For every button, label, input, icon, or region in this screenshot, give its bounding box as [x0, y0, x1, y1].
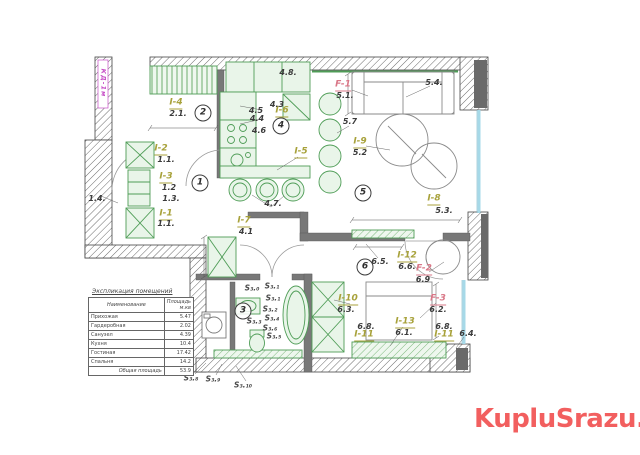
room-name: Кухня — [89, 340, 165, 349]
clothes-rack — [150, 66, 217, 94]
room-name: Гостиная — [89, 349, 165, 358]
kuplusrazu-watermark: KupluSrazu.ru — [474, 404, 634, 434]
armchair-2 — [411, 143, 457, 189]
hall-wardrobe-3 — [208, 237, 236, 277]
kitchen-bar-counter — [220, 166, 310, 178]
total-area-label: Общая площадь — [89, 367, 165, 376]
toilet — [250, 330, 265, 352]
table-row: Гостиная17.42 — [89, 349, 194, 358]
kitchen-counter — [220, 92, 256, 120]
room-name: Спальня — [89, 358, 165, 367]
room-name: Гардеробная — [89, 322, 165, 331]
bar-stools — [229, 179, 304, 201]
explication-table: Наименование Площадь м.кв Прихожая5.47Га… — [88, 297, 194, 376]
hall-shoe-cabinet — [128, 170, 150, 206]
hall-wardrobe-1 — [126, 142, 154, 168]
hall-door-arc — [240, 245, 272, 277]
bedroom-wardrobe — [312, 282, 344, 352]
washing-machine — [202, 312, 226, 338]
shaft-strip — [98, 60, 108, 108]
floor-plan-page: I-42.1.I-21.1.I-31.21.3.1.4.I-11.1.I-74.… — [0, 0, 640, 455]
bedroom-armchair — [426, 240, 460, 274]
room-explication: Экспликация помещений Наименование Площа… — [88, 288, 194, 376]
floor-plan-drawing — [0, 0, 640, 455]
bathtub — [283, 286, 309, 344]
room-name: Санузел — [89, 331, 165, 340]
tv-console — [352, 230, 414, 238]
column-header-area: Площадь м.кв — [164, 298, 193, 313]
table-row: Гардеробная2.02 — [89, 322, 194, 331]
table-row: Прихожая5.47 — [89, 313, 194, 322]
room-area: 17.42 — [164, 349, 193, 358]
dining-chairs — [319, 93, 341, 193]
bath-sink — [236, 298, 260, 314]
armchair-1 — [376, 114, 428, 166]
table-title: Экспликация помещений — [92, 288, 194, 295]
kitchen-wall-cabinets — [226, 62, 310, 92]
kitchen-stove — [220, 120, 256, 148]
sofa — [352, 72, 454, 114]
room-name: Прихожая — [89, 313, 165, 322]
room-area: 14.2 — [164, 358, 193, 367]
table-row: Спальня14.2 — [89, 358, 194, 367]
bathroom-door-arc — [272, 245, 304, 277]
table-row: Санузел4.39 — [89, 331, 194, 340]
bed — [366, 282, 432, 340]
hall-wardrobe-2 — [126, 208, 154, 238]
room-area: 10.4 — [164, 340, 193, 349]
wardrobe-room-door-arc — [186, 150, 222, 186]
bedroom-bench — [352, 342, 446, 358]
total-area-value: 53.9 — [164, 367, 193, 376]
table-row: Кухня10.4 — [89, 340, 194, 349]
room-area: 5.47 — [164, 313, 193, 322]
fridge — [283, 94, 310, 120]
room-area: 2.02 — [164, 322, 193, 331]
column-header-name: Наименование — [89, 298, 165, 313]
room-area: 4.39 — [164, 331, 193, 340]
